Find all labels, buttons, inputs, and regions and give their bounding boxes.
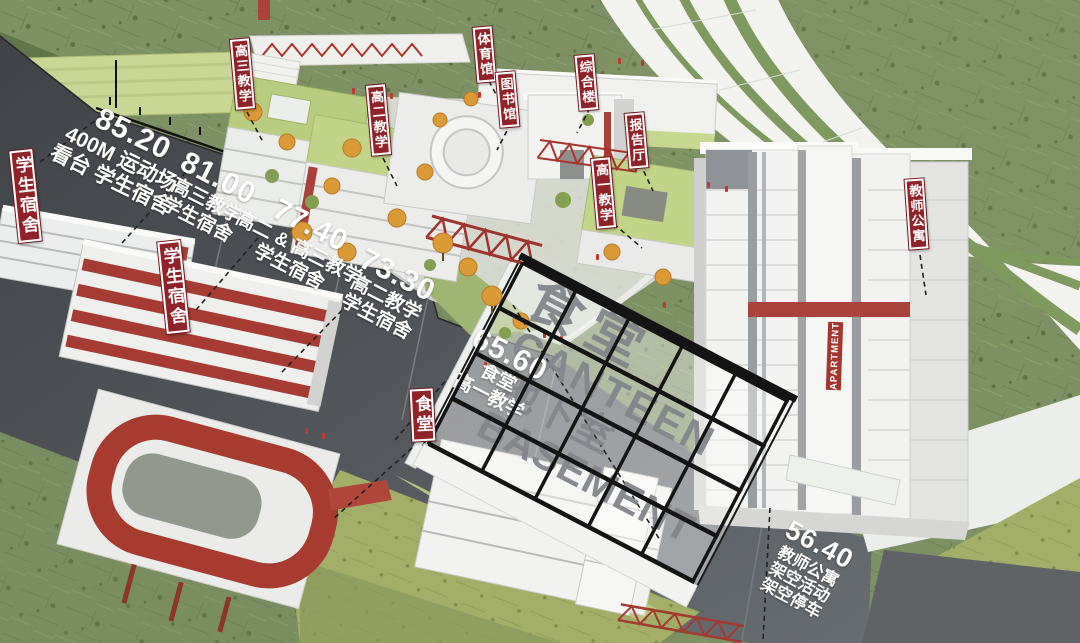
campus-section-diagram: 85.20 400M 运动场 看台 学生宿舍 81.00 高三教学 学生宿舍 7… — [0, 0, 1080, 643]
tag-canteen: 食堂 — [410, 388, 436, 441]
library-building — [384, 92, 546, 224]
apartment-banner-text: APARTMENT — [828, 322, 841, 390]
apartment-facade-banner: APARTMENT — [826, 322, 843, 390]
apartment-red-band — [748, 302, 910, 317]
